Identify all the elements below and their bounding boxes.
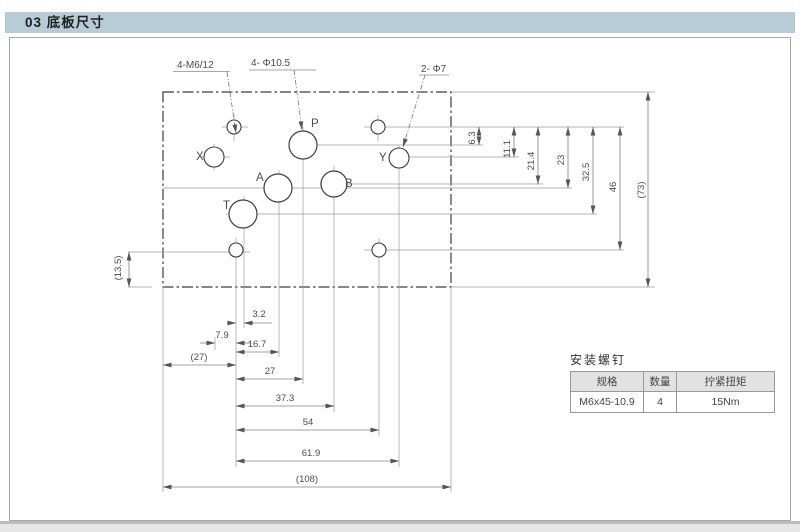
dim-54: 54	[236, 417, 379, 430]
dim-value: 27	[265, 366, 276, 377]
dim-value: (73)	[636, 182, 647, 199]
dim-value: 11.1	[502, 140, 513, 158]
dim-value: 32.5	[581, 163, 592, 182]
port-label-y: Y	[379, 152, 387, 164]
dim-46: 46	[608, 127, 620, 250]
base-plate-drawing: X P Y A B T 4-M6/12 4- Φ10.5 2- Φ7	[0, 0, 800, 532]
dim-6-3: 6.3	[467, 127, 479, 145]
cell-torque: 15Nm	[677, 392, 775, 413]
port-label-a: A	[256, 172, 264, 184]
dim-value: (27)	[191, 352, 208, 363]
leader-m6: 4-M6/12	[173, 60, 236, 133]
dim-value: 23	[556, 155, 567, 166]
screw-table-header-row: 规格 数量 拧紧扭矩	[571, 372, 775, 392]
port-labels: X P Y A B T	[196, 118, 387, 212]
dim-16-7: 16.7	[236, 339, 279, 352]
dim-3-2: 3.2	[227, 309, 272, 323]
dim-value: (13.5)	[113, 256, 124, 281]
screw-table-data-row: M6x45-10.9 4 15Nm	[571, 392, 775, 413]
plate-outline	[163, 92, 451, 287]
header-torque: 拧紧扭矩	[677, 372, 775, 392]
port-holes-d105	[229, 131, 347, 228]
cell-spec: M6x45-10.9	[571, 392, 644, 413]
dim-value: 46	[608, 182, 619, 193]
port-label-p: P	[311, 118, 319, 130]
header-spec: 规格	[571, 372, 644, 392]
dim-value: 3.2	[252, 309, 265, 320]
dim-32-5: 32.5	[581, 127, 593, 214]
dim-73-ref: (73)	[636, 92, 648, 287]
dim-value: 61.9	[302, 448, 321, 459]
leader-d7: 2- Φ7	[403, 64, 449, 147]
leader-d105: 4- Φ10.5	[249, 58, 316, 130]
datasheet-page: 03 底板尺寸	[0, 0, 800, 532]
dim-27-ref: (27)	[163, 352, 236, 365]
dim-7-9: 7.9	[200, 330, 251, 343]
screw-table-title: 安装螺钉	[570, 351, 626, 368]
dim-13-5-ref: (13.5)	[113, 252, 129, 287]
port-label-t: T	[223, 200, 230, 212]
dim-value: (108)	[296, 474, 318, 485]
dim-value: 54	[303, 417, 314, 428]
cell-qty: 4	[644, 392, 677, 413]
leader-label-d105: 4- Φ10.5	[251, 58, 291, 69]
dim-21-4: 21.4	[526, 127, 538, 184]
port-label-b: B	[345, 178, 353, 190]
dim-61-9: 61.9	[236, 448, 399, 461]
dim-value: 21.4	[526, 152, 537, 171]
dim-value: 16.7	[248, 339, 267, 350]
dim-23: 23	[556, 127, 568, 188]
dim-value: 6.3	[467, 131, 478, 144]
page-edge-strip	[0, 524, 800, 532]
dim-37-3: 37.3	[236, 393, 334, 406]
header-qty: 数量	[644, 372, 677, 392]
screw-table: 规格 数量 拧紧扭矩 M6x45-10.9 4 15Nm	[570, 371, 775, 413]
leader-label-d7: 2- Φ7	[421, 64, 447, 75]
dim-value: 7.9	[215, 330, 228, 341]
dim-11-1: 11.1	[502, 127, 514, 158]
dim-value: 37.3	[276, 393, 295, 404]
dim-108-ref: (108)	[163, 474, 451, 487]
leader-label-m6: 4-M6/12	[177, 60, 214, 71]
port-label-x: X	[196, 151, 204, 163]
dim-27: 27	[236, 366, 303, 379]
